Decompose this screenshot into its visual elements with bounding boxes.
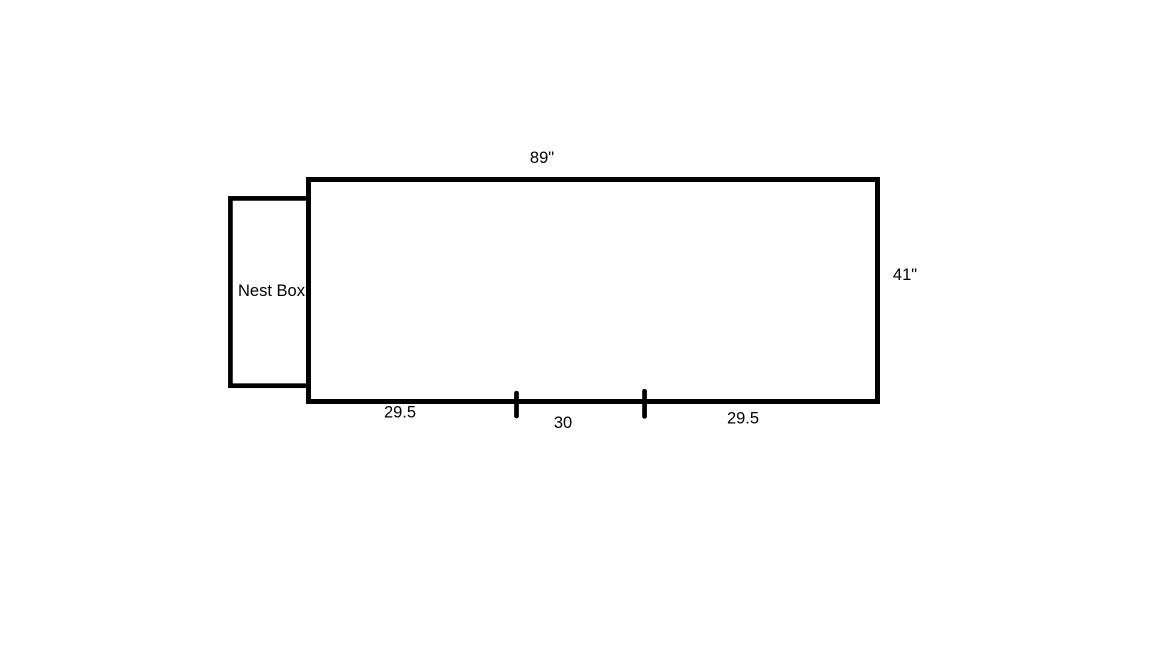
svg-text:29.5: 29.5 <box>727 410 759 428</box>
svg-text:41": 41" <box>893 266 917 284</box>
svg-text:Nest Box: Nest Box <box>238 282 306 300</box>
svg-text:89": 89" <box>530 149 554 167</box>
svg-text:30: 30 <box>554 414 572 432</box>
svg-text:29.5: 29.5 <box>384 404 416 422</box>
